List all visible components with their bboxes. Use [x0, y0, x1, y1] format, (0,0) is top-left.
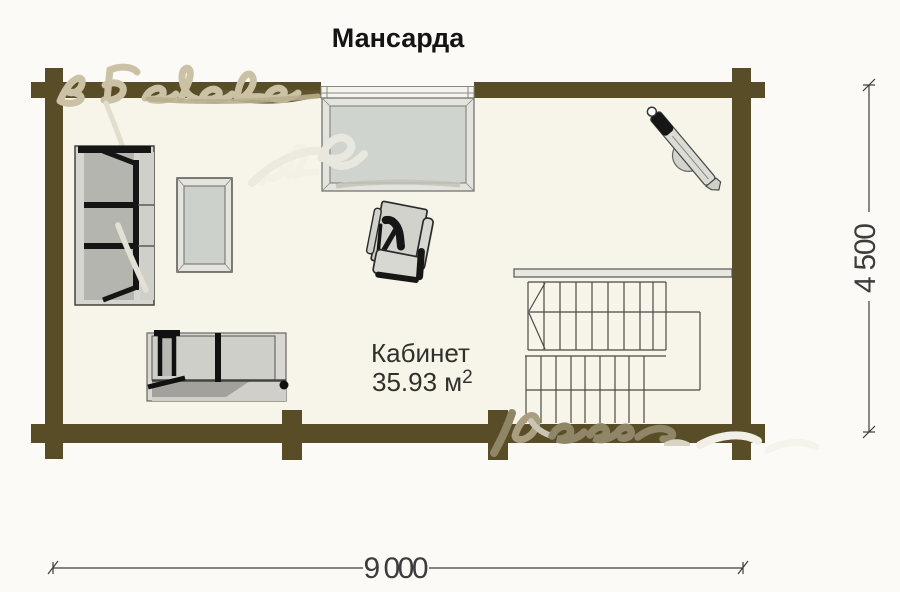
- svg-text:Мансарда: Мансарда: [332, 23, 465, 53]
- svg-text:9 000: 9 000: [364, 552, 429, 585]
- svg-text:Кабинет: Кабинет: [371, 338, 470, 368]
- svg-text:35.93 м2: 35.93 м2: [372, 367, 473, 397]
- svg-text:4 500: 4 500: [849, 223, 882, 293]
